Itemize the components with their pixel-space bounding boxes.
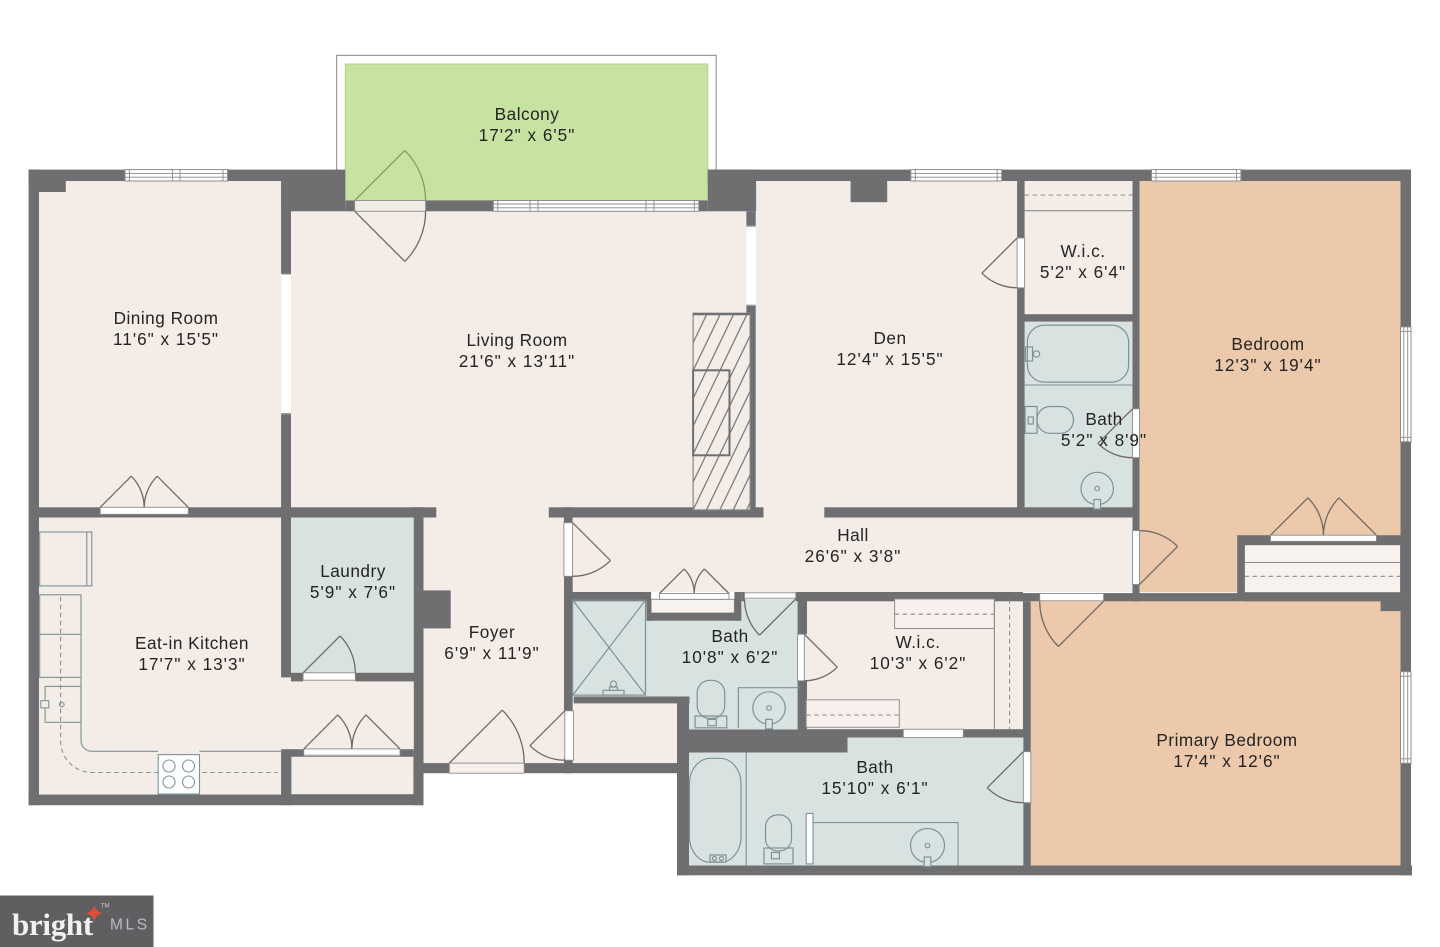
svg-text:Foyer: Foyer bbox=[469, 622, 515, 642]
svg-text:10'3" x 6'2": 10'3" x 6'2" bbox=[870, 653, 967, 673]
svg-text:15'10" x 6'1": 15'10" x 6'1" bbox=[821, 778, 928, 798]
svg-text:Bath: Bath bbox=[711, 626, 748, 646]
svg-text:Bath: Bath bbox=[1085, 409, 1122, 429]
svg-text:5'2" x 8'9": 5'2" x 8'9" bbox=[1061, 430, 1147, 450]
svg-text:MLS: MLS bbox=[110, 917, 150, 934]
svg-text:Bedroom: Bedroom bbox=[1231, 334, 1304, 354]
svg-text:W.i.c.: W.i.c. bbox=[1060, 241, 1105, 261]
svg-text:17'2" x 6'5": 17'2" x 6'5" bbox=[479, 125, 576, 145]
svg-text:Bath: Bath bbox=[856, 757, 893, 777]
svg-text:10'8" x 6'2": 10'8" x 6'2" bbox=[682, 647, 779, 667]
svg-text:Hall: Hall bbox=[837, 525, 869, 545]
svg-text:Living Room: Living Room bbox=[466, 330, 567, 350]
svg-text:Eat-in Kitchen: Eat-in Kitchen bbox=[135, 633, 249, 653]
svg-text:17'4" x 12'6": 17'4" x 12'6" bbox=[1173, 751, 1280, 771]
svg-text:26'6" x 3'8": 26'6" x 3'8" bbox=[805, 546, 902, 566]
svg-text:12'4" x 15'5": 12'4" x 15'5" bbox=[836, 349, 943, 369]
svg-text:Balcony: Balcony bbox=[495, 104, 560, 124]
svg-text:Primary Bedroom: Primary Bedroom bbox=[1156, 730, 1297, 750]
svg-text:5'9" x 7'6": 5'9" x 7'6" bbox=[310, 582, 396, 602]
svg-text:Den: Den bbox=[873, 328, 906, 348]
svg-text:Laundry: Laundry bbox=[320, 561, 386, 581]
svg-text:W.i.c.: W.i.c. bbox=[895, 632, 940, 652]
svg-text:12'3" x 19'4": 12'3" x 19'4" bbox=[1214, 355, 1321, 375]
svg-text:TM: TM bbox=[101, 903, 110, 910]
svg-text:17'7" x 13'3": 17'7" x 13'3" bbox=[138, 654, 245, 674]
svg-text:21'6" x 13'11": 21'6" x 13'11" bbox=[459, 351, 576, 371]
svg-text:6'9" x 11'9": 6'9" x 11'9" bbox=[444, 643, 539, 663]
svg-text:Dining Room: Dining Room bbox=[114, 308, 219, 328]
svg-text:bright: bright bbox=[12, 907, 94, 942]
svg-text:11'6" x 15'5": 11'6" x 15'5" bbox=[113, 329, 219, 349]
svg-text:5'2" x 6'4": 5'2" x 6'4" bbox=[1040, 262, 1126, 282]
